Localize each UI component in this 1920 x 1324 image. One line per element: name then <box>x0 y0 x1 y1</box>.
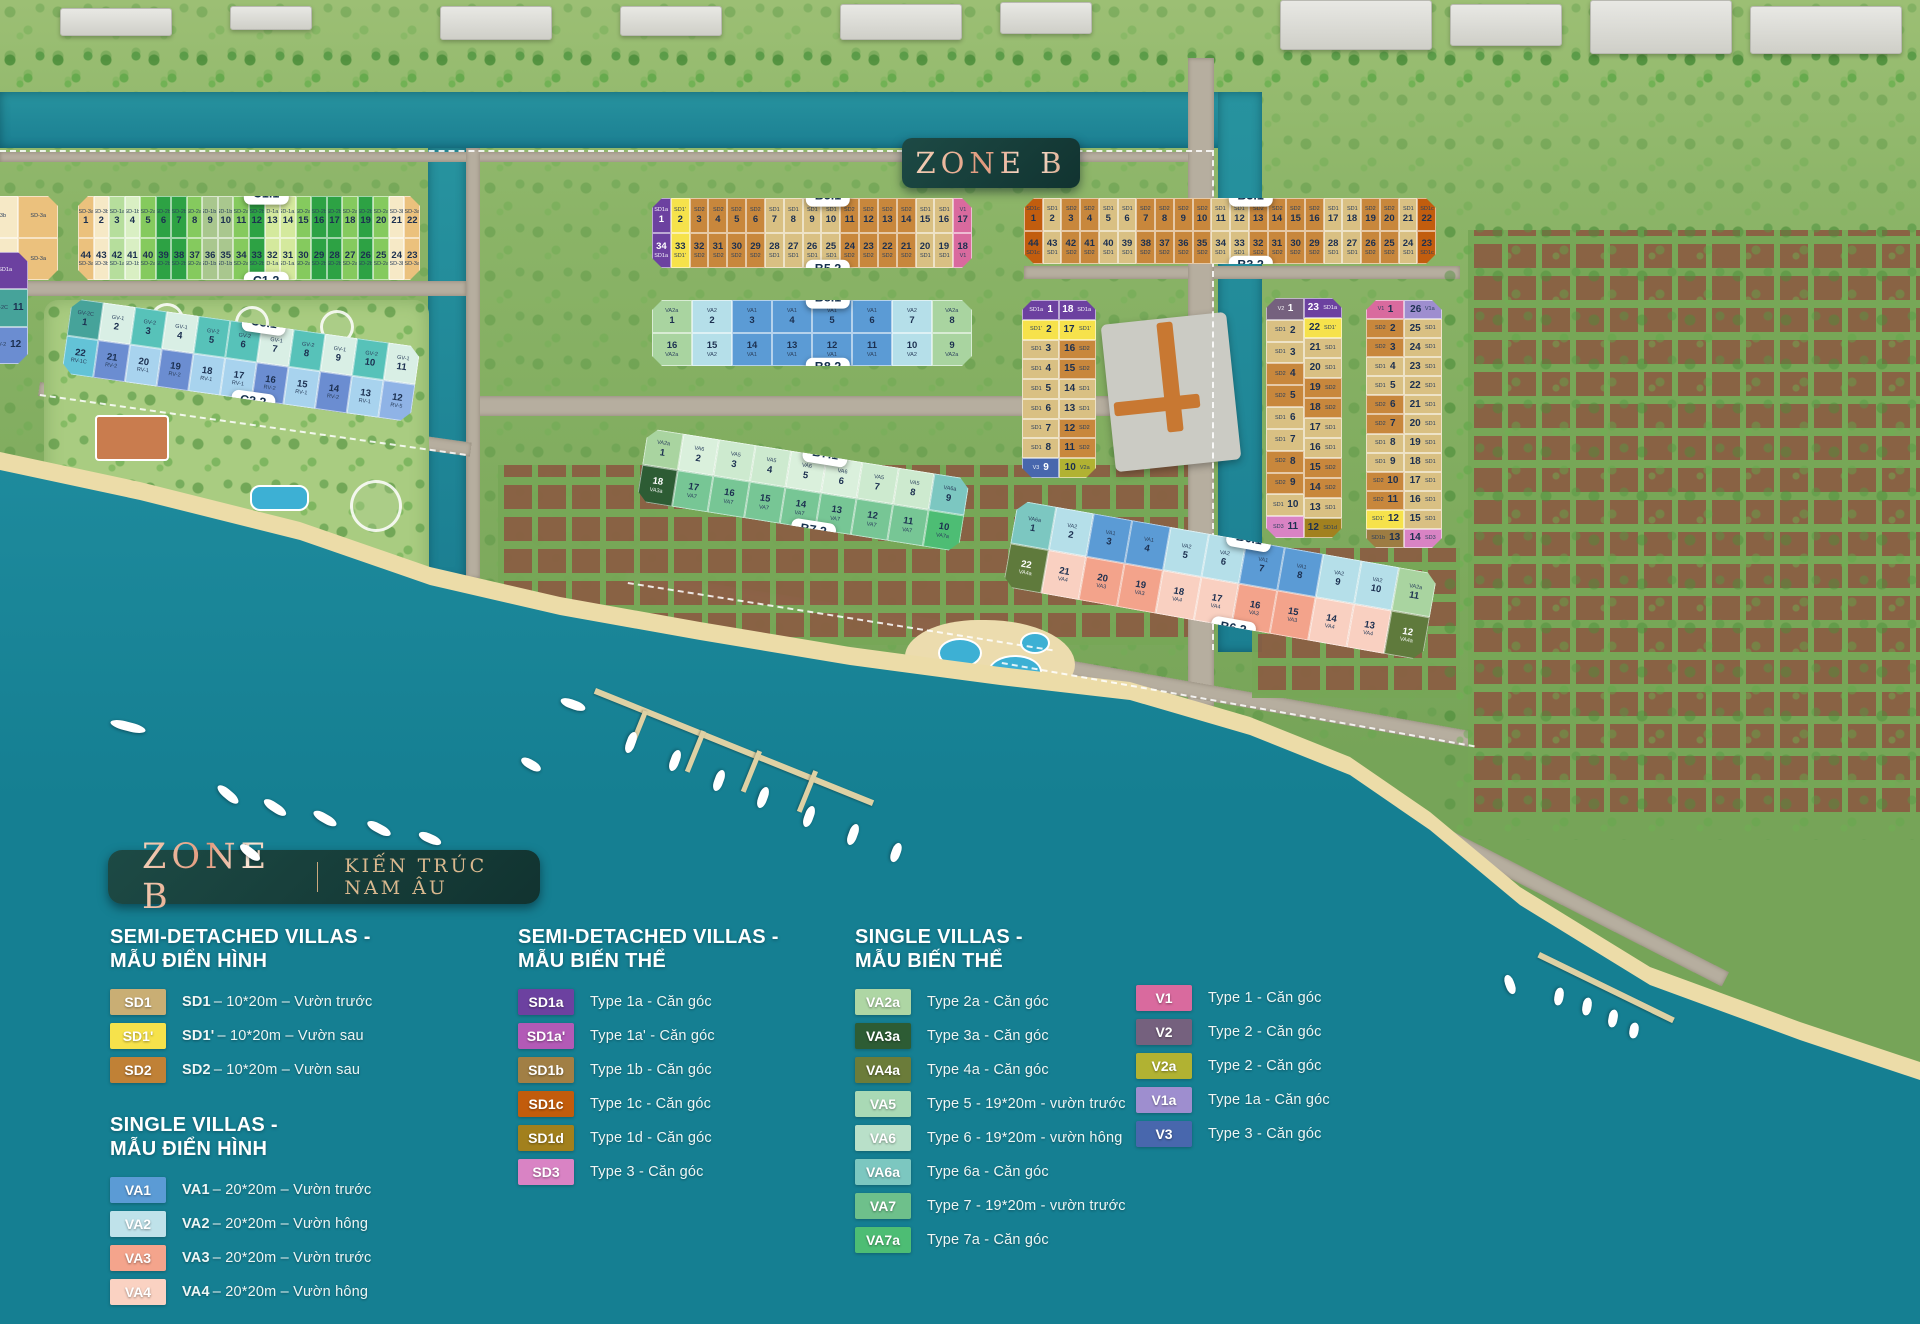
parcel-11: GV-2C11 <box>0 289 28 326</box>
parcel-10: SD210 <box>1366 472 1404 491</box>
building <box>840 4 962 40</box>
parcel-type-code: VA2 <box>1372 577 1383 584</box>
parcel-12: 12SD2 <box>1059 419 1096 439</box>
parcel-type-code: V1 <box>1377 307 1384 313</box>
parcel-20: 20SD1 <box>1404 414 1442 433</box>
parcel-type-code: SD-3a <box>78 209 94 215</box>
parcel-number: 15 <box>1410 514 1421 524</box>
parcel-type-code: SD1 <box>1425 498 1436 504</box>
parcel-number: 35 <box>220 251 231 261</box>
parcel-6: SD16 <box>1022 399 1059 419</box>
parcel-type-code: SD1 <box>1031 426 1042 432</box>
parcel-3: SD13 <box>1022 340 1059 360</box>
parcel-number: 8 <box>949 316 954 326</box>
parcel-number: 13 <box>360 388 372 399</box>
parcel-type-code: SD1 <box>825 207 836 213</box>
parcel-type-code: SD-3a <box>78 261 94 267</box>
parcel-type-code: SD-3a <box>404 261 420 267</box>
parcel-28: 28SD-2b <box>327 238 343 280</box>
parcel-number: 33 <box>252 251 263 261</box>
parcel-number: 17 <box>233 370 245 381</box>
parcel-number: 10 <box>907 341 918 351</box>
parcel-type-code: RV-1C <box>71 358 88 366</box>
parcel-number: 9 <box>949 341 954 351</box>
parcel-number: 3 <box>696 215 701 225</box>
parcel-8: SD18 <box>1366 434 1404 453</box>
block-C1.1: SD-3a1SD-3b2SD-1a3SD-1b4SD-2a5SD-2b6SD-2… <box>78 196 420 280</box>
waterpark-pool <box>1020 632 1050 654</box>
parcel-20: 20RV-1 <box>125 345 162 387</box>
parcel-number: 25 <box>376 251 387 261</box>
parcel-type-code: SD-2b <box>156 261 172 267</box>
parcel-type-code: SD-1b <box>125 261 141 267</box>
parcel-15: SD215 <box>1286 198 1305 231</box>
parcel-number: 17 <box>1410 476 1421 486</box>
legend-swatch-V1a: V1a <box>1136 1087 1192 1113</box>
parcel-number: 4 <box>1046 364 1052 374</box>
parcel-number: 13 <box>1389 533 1400 543</box>
parcel-number: 12 <box>1388 514 1399 524</box>
parcel-type-code: VA6 <box>837 469 848 476</box>
parcel-number: 22 <box>75 348 87 359</box>
parcel-14: 14VA1 <box>732 333 772 366</box>
parcel-number: 16 <box>1310 443 1321 453</box>
parcel-type-code: VA2 <box>1219 550 1230 557</box>
legend-item-VA4: VA4VA4– 20*20m – Vườn hông <box>110 1279 450 1305</box>
legend-swatch-V3: V3 <box>1136 1121 1192 1147</box>
parcel-type-code: SD2 <box>1290 250 1301 256</box>
road <box>0 281 466 296</box>
parcel-number: 22 <box>407 216 418 226</box>
parcel-3: SD13 <box>1266 342 1304 364</box>
parcel-type-code: SD2 <box>1272 206 1283 212</box>
parcel-9: GV-19 <box>320 334 357 376</box>
parcel-number: 1 <box>659 215 664 225</box>
parcel-type-code: SD2 <box>1197 206 1208 212</box>
parcel-number: 9 <box>1181 214 1186 224</box>
parcel-number: 11 <box>902 516 913 527</box>
parcel-type-code: SD1 <box>807 207 818 213</box>
parcel-type-code: SD1 <box>825 253 836 259</box>
parcel-number: 6 <box>1124 214 1129 224</box>
parcel-number: 15 <box>759 493 771 504</box>
parcel-type-code: SD2 <box>1079 446 1090 452</box>
legend-item-label: Type 1d - Căn góc <box>590 1130 712 1146</box>
parcel-34: 34SD1 <box>1211 231 1230 264</box>
parcel-9: SD19 <box>1366 453 1404 472</box>
parcel-number: 7 <box>1390 419 1396 429</box>
parcel-type-code: SD1 <box>1275 350 1286 356</box>
parcel-type-code: VA7 <box>687 493 698 500</box>
legend-swatch-VA5: VA5 <box>855 1091 911 1117</box>
legend-item-SD1c: SD1cType 1c - Căn góc <box>518 1091 818 1117</box>
legend-item-VA2a: VA2aType 2a - Căn góc <box>855 989 1155 1015</box>
parcel-22: 22SD2 <box>878 233 897 268</box>
parcel-type-code: SD2 <box>1065 250 1076 256</box>
parcel-type-code: VA3a <box>649 487 663 495</box>
parcel-3: SD-1a3 <box>109 196 125 238</box>
swimming-pool <box>250 485 309 511</box>
parcel-type-code: GV-2 <box>301 341 314 348</box>
parcel-number: 12 <box>1064 424 1075 434</box>
parcel-number: 5 <box>1290 391 1296 401</box>
legend-item-label: Type 3 - Căn góc <box>590 1164 704 1180</box>
parcel-number: 7 <box>909 316 914 326</box>
parcel-number: 18 <box>1410 457 1421 467</box>
parcel-number: 41 <box>1084 239 1095 249</box>
parcel-type-code: SD-3b <box>94 209 110 215</box>
legend-item-label: Type 1a - Căn góc <box>590 994 712 1010</box>
parcel-type-code: SD1 <box>1031 366 1042 372</box>
parcel-type-code: GV-1 <box>396 355 409 362</box>
parcel-type-code: SD1a <box>0 268 12 274</box>
parcel-type-code: SD-3b <box>389 209 405 215</box>
parcel-type-code: VA2 <box>907 352 917 358</box>
parcel-type-code: SD-2a <box>233 261 249 267</box>
block-B8.1: VA2a1VA22VA13VA14VA15VA16VA27VA2a816VA2a… <box>652 300 972 366</box>
parcel-number: 18 <box>345 216 356 226</box>
parcel-type-code: SD1c <box>1420 250 1434 256</box>
parcel-5: SD25 <box>727 198 746 233</box>
parcel-number: 23 <box>407 251 418 261</box>
legend-item-label: Type 1b - Căn góc <box>590 1062 712 1078</box>
parcel-number: 21 <box>1403 214 1414 224</box>
legend-divider <box>317 862 319 892</box>
parcel-2: GV-12 <box>98 302 135 344</box>
parcel-number: 13 <box>882 215 893 225</box>
parcel-7: SD-2b7 <box>171 196 187 238</box>
parcel-number: 37 <box>189 251 200 261</box>
parcel-number: 6 <box>240 340 247 350</box>
parcel-30: 30SD-2a <box>296 238 312 280</box>
parcel-8: SD18 <box>784 198 803 233</box>
parcel-number: 7 <box>874 482 881 492</box>
parcel-type-code: VA1 <box>827 308 837 314</box>
parcel-12: 12VA7 <box>851 499 893 541</box>
parcel-11: SD111 <box>1211 198 1230 231</box>
parcel-type-code: SD2 <box>1375 345 1386 351</box>
parcel-number: 23 <box>1308 303 1319 313</box>
parcel-number: 8 <box>791 215 796 225</box>
parcel-19: 19RV-2 <box>156 349 193 391</box>
parcel-number: 19 <box>1410 438 1421 448</box>
parcel-type-code: VA2a <box>665 352 678 358</box>
parcel-type-code: SD-2a <box>140 261 156 267</box>
parcel-type-code: SD2 <box>844 253 855 259</box>
legend-swatch-VA3: VA3 <box>110 1245 166 1271</box>
parcel-number: 8 <box>1046 443 1052 453</box>
parcel-type-code: GV-2 <box>365 350 378 357</box>
parcel-type-code: SD1 <box>1325 505 1336 511</box>
parcel-type-code: GV-1 <box>174 324 187 331</box>
parcel-type-code: SD1 <box>788 207 799 213</box>
parcel-type-code: SD1 <box>1375 383 1386 389</box>
parcel-type-code: GV-1 <box>333 346 346 353</box>
parcel-number: 32 <box>1253 239 1264 249</box>
parcel-number: 14 <box>328 383 340 394</box>
parcel-2: SD22 <box>1366 319 1404 338</box>
parcel-type-code: SD2 <box>1140 206 1151 212</box>
parcel-type-code: SD1 <box>1425 326 1436 332</box>
parcel-number: 3 <box>1046 344 1052 354</box>
parcel-type-code: SD1 <box>1215 206 1226 212</box>
parcel-number: 7 <box>1258 564 1265 574</box>
parcel-number: 9 <box>208 216 213 226</box>
masterplan-canvas: ZONE B ZONE B KIẾN TRÚC NAM ÂU SEMI-DETA… <box>0 0 1920 1324</box>
parcel-type-code: SD2 <box>863 253 874 259</box>
parcel-number: 6 <box>753 215 758 225</box>
parcel-4: VA54 <box>750 445 792 487</box>
parcel-12: SD1'12 <box>1366 510 1404 529</box>
parcel-type-code: SD-2b <box>327 261 343 267</box>
parcel-24: 24SD-3b <box>389 238 405 280</box>
parcel-number: 19 <box>1365 214 1376 224</box>
legend-swatch-VA2: VA2 <box>110 1211 166 1237</box>
legend-item-SD1a: SD1aType 1a - Căn góc <box>518 989 818 1015</box>
parcel-type-code: SD1' <box>674 253 686 259</box>
parcel-8: SD18 <box>1022 438 1059 458</box>
parcel-42: 42SD-1a <box>109 238 125 280</box>
legend-swatch-SD1': SD1' <box>110 1023 166 1049</box>
parcel-number: 13 <box>787 341 798 351</box>
parcel-number: 9 <box>809 215 814 225</box>
parcel-35: 35SD-1b1 <box>218 238 234 280</box>
parcel-number: 30 <box>298 251 309 261</box>
parcel-type-code: SD-1b1 <box>202 209 218 215</box>
parcel-number: 13 <box>267 216 278 226</box>
parcel-24: 24SD1 <box>1404 338 1442 357</box>
parcel-type-code: SD-1a1 <box>280 209 296 215</box>
legend-swatch-SD1a': SD1a' <box>518 1023 574 1049</box>
parcel-19: 19SD1 <box>1404 434 1442 453</box>
parcel-type-code: GV-2 <box>206 328 219 335</box>
parcel-type-code: VA1 <box>747 352 757 358</box>
parcel-number: 17 <box>957 215 968 225</box>
tree-row-top <box>0 48 1920 94</box>
parcel-9: SD-1b19 <box>202 196 218 238</box>
parcel-type-code: SD2 <box>1275 481 1286 487</box>
parcel-number: 17 <box>1063 325 1074 335</box>
parcel-36: 36SD2 <box>1174 231 1193 264</box>
parcel-type-code: VA1 <box>867 308 877 314</box>
parcel-type-code: SD1 <box>807 253 818 259</box>
parcel-number: 21 <box>901 242 912 252</box>
parcel-type-code: SD1 <box>1122 206 1133 212</box>
parcel-number: 10 <box>826 215 837 225</box>
zone-plate-title: ZONE B <box>916 146 1067 180</box>
parcel-type-code: SD-3a <box>404 209 420 215</box>
parcel-type-code: SD1 <box>1328 206 1339 212</box>
parcel-type-code: SD2 <box>1384 206 1395 212</box>
legend-item-V2a: V2aType 2 - Căn góc <box>1136 1053 1436 1079</box>
parcel-type-code: SD2 <box>1375 402 1386 408</box>
parcel-number: 2 <box>1290 326 1296 336</box>
parcel-number: 24 <box>391 251 402 261</box>
parcel-type-code: SD2 <box>1325 385 1336 391</box>
parcel-3: VA53 <box>714 439 756 481</box>
parcel-number: 2 <box>99 216 104 226</box>
parcel-number: 14 <box>1410 533 1421 543</box>
parcel-16: 16SD2 <box>1059 340 1096 360</box>
parcel-type-code: SD2 <box>1197 250 1208 256</box>
legend-item-VA7a: VA7aType 7a - Căn góc <box>855 1227 1155 1253</box>
parcel-7: SD17 <box>1266 429 1304 451</box>
parcel-16: 16SD1 <box>1404 491 1442 510</box>
parcel-type-code: SD2 <box>1178 250 1189 256</box>
parcel-type-code: RV-1 <box>358 398 371 405</box>
parcel-4: SD14 <box>1022 359 1059 379</box>
parcel-number: 14 <box>747 341 758 351</box>
building <box>1000 2 1092 34</box>
parcel-3: SD23 <box>690 198 709 233</box>
parcel-3: GV-23 <box>130 307 167 349</box>
parcel-type-code: SD-2b <box>311 209 327 215</box>
parcel-40: 40SD-2a <box>140 238 156 280</box>
parcel-number: 22 <box>1410 381 1421 391</box>
parcel-number: 2 <box>113 322 120 332</box>
parcel-type-code: SD-1a <box>109 209 125 215</box>
parcel-type-code: SD1 <box>1031 446 1042 452</box>
legend-item-label: Type 1c - Căn góc <box>590 1096 711 1112</box>
legend-item-label: Type 7a - Căn góc <box>927 1232 1049 1248</box>
parcel-number: 7 <box>272 344 279 354</box>
parcel-number: 21 <box>1310 343 1321 353</box>
parcel-number: 18 <box>1062 305 1073 315</box>
parcel-37: 37SD2 <box>1155 231 1174 264</box>
parcel-number: 2 <box>1390 324 1396 334</box>
parcel-number: 4 <box>715 215 720 225</box>
parcel-42: 42SD2 <box>1061 231 1080 264</box>
legend-swatch-V1: V1 <box>1136 985 1192 1011</box>
parcel-number: 5 <box>802 470 809 480</box>
parcel-19: SD-2b19 <box>358 196 374 238</box>
parcel-type-code: V1 <box>959 253 966 259</box>
parcel-type-code: SD2 <box>713 253 724 259</box>
parcel-type-code: SD1 <box>1079 406 1090 412</box>
road-vertical <box>466 148 480 578</box>
parcel-type-code: SD2 <box>882 253 893 259</box>
parcel-9: SD29 <box>1266 473 1304 495</box>
parcel-32: 32SD2 <box>690 233 709 268</box>
parcel-13: 13RV-1 <box>347 376 384 418</box>
parcel-13: 13SD1 <box>1059 399 1096 419</box>
parcel-type-code: SD1 <box>920 207 931 213</box>
parcel-number: 26 <box>1410 305 1421 315</box>
parcel-number: 3 <box>1068 214 1073 224</box>
parcel-type-code: RV-1 <box>136 367 149 374</box>
parcel-number: 42 <box>112 251 123 261</box>
parcel-18: 18RV-1 <box>188 353 225 395</box>
parcel-37: 37SD-2a <box>187 238 203 280</box>
parcel-type-code: SD-2b <box>311 261 327 267</box>
parcel-type-code: SD2 <box>1079 347 1090 353</box>
parcel-21: 21SD2 <box>897 233 916 268</box>
legend-item-label: Type 4a - Căn góc <box>927 1062 1049 1078</box>
legend-item-label: Type 3 - Căn góc <box>1208 1126 1322 1142</box>
parcel-type-code: SD2 <box>1275 393 1286 399</box>
legend-item-label: Type 1a' - Căn góc <box>590 1028 715 1044</box>
parcel-number: 12 <box>10 340 21 350</box>
parcel-5: SD25 <box>1266 385 1304 407</box>
parcel-number: 13 <box>1310 503 1321 513</box>
parcel-type-code: SD2 <box>1365 206 1376 212</box>
legend-item-label: Type 6a - Căn góc <box>927 1164 1049 1180</box>
legend-swatch-VA7: VA7 <box>855 1193 911 1219</box>
parcel-15: 15SD1 <box>1404 510 1442 529</box>
parcel-number: 9 <box>1390 457 1396 467</box>
parcel-type-code: SD1 <box>1425 517 1436 523</box>
parcel-number: 16 <box>265 374 277 385</box>
parcel-type-code: SD2 <box>1272 250 1283 256</box>
parcel-2: SD-3b2 <box>94 196 110 238</box>
parcel-type-code: VA1 <box>787 352 797 358</box>
legend-item-SD1b: SD1bType 1b - Căn góc <box>518 1057 818 1083</box>
parcel-type-code: VA7 <box>830 516 841 523</box>
parcel-number: 20 <box>376 216 387 226</box>
parcel-type-code: SD1 <box>1275 437 1286 443</box>
parcel-number: 3 <box>1105 537 1112 547</box>
parcel-11: 11SD2 <box>1059 438 1096 458</box>
parcel-number: 14 <box>795 499 807 510</box>
parcel-number: 6 <box>838 476 845 486</box>
parcel-type-code: SD1 <box>1275 328 1286 334</box>
canal-left <box>428 148 466 578</box>
parcel-10: SD210 <box>1193 198 1212 231</box>
legend-subtitle: KIẾN TRÚC NAM ÂU <box>344 855 540 899</box>
parcel-number: 17 <box>1310 423 1321 433</box>
parcel-23: 23SD2 <box>859 233 878 268</box>
parcel-number: 5 <box>208 335 215 345</box>
parcel-type-code: SD1 <box>788 253 799 259</box>
parcel-number: 8 <box>1390 438 1396 448</box>
parcel-17: 17SD1 <box>1404 472 1442 491</box>
parcel-type-code: SD2 <box>1253 250 1264 256</box>
parcel-number: 12 <box>866 510 878 521</box>
parcel-type-code: SD-2a <box>373 209 389 215</box>
parcel-17: 17SD1' <box>1059 320 1096 340</box>
legend-item-VA3: VA3VA3– 20*20m – Vườn trước <box>110 1245 450 1271</box>
legend-swatch-VA6a: VA6a <box>855 1159 911 1185</box>
parcel-number: 31 <box>283 251 294 261</box>
legend-section-title: SEMI-DETACHED VILLAS - MẪU BIẾN THỂ <box>518 925 818 973</box>
parcel-36: 36SD-1b1 <box>202 238 218 280</box>
parcel-type-code: VA7 <box>758 504 769 511</box>
parcel-type-code: SD2 <box>1275 459 1286 465</box>
parcel-number: 6 <box>1390 400 1396 410</box>
parcel-33: 33SD1' <box>671 233 690 268</box>
parcel-number: 18 <box>1310 403 1321 413</box>
legend-item-SD1d: SD1dType 1d - Căn góc <box>518 1125 818 1151</box>
parcel-2: SD1'2 <box>1022 320 1059 340</box>
parcel-type-code: VA1 <box>1105 530 1116 537</box>
parcel-number: 44 <box>80 251 91 261</box>
parcel-41: 41SD-1b <box>125 238 141 280</box>
parcel-number: 5 <box>829 316 834 326</box>
building <box>620 6 722 36</box>
legend-item-label: Type 7 - 19*20m - vườn trước <box>927 1198 1126 1214</box>
parcel-type-code: SD2 <box>1384 250 1395 256</box>
parcel-number: 24 <box>1403 239 1414 249</box>
block-B2.1: V21SD12SD13SD24SD25SD16SD17SD28SD29SD110… <box>1266 298 1342 538</box>
parcel-type-code: VA4a <box>1018 570 1032 578</box>
parcel-8: VA58 <box>893 468 935 510</box>
legend-swatch-SD1d: SD1d <box>518 1125 574 1151</box>
parcel-8: SD-2a8 <box>187 196 203 238</box>
legend-swatch-VA6: VA6 <box>855 1125 911 1151</box>
parcel-number: 5 <box>145 216 150 226</box>
legend-item-label: Type 5 - 19*20m - vườn trước <box>927 1096 1126 1112</box>
parcel-type-code: VA1 <box>1143 536 1154 543</box>
